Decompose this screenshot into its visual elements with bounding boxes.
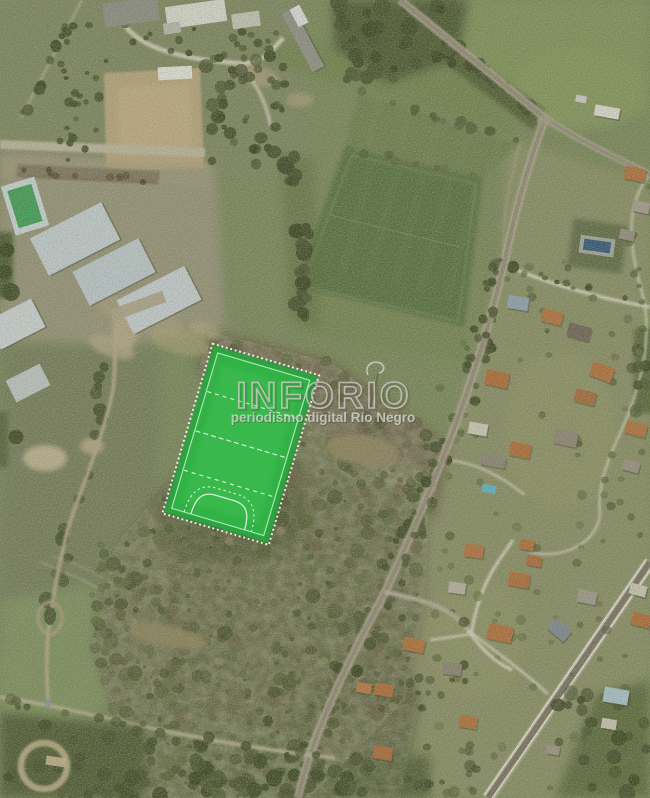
svg-text:periodismo digital Río Negro: periodismo digital Río Negro xyxy=(231,410,416,425)
